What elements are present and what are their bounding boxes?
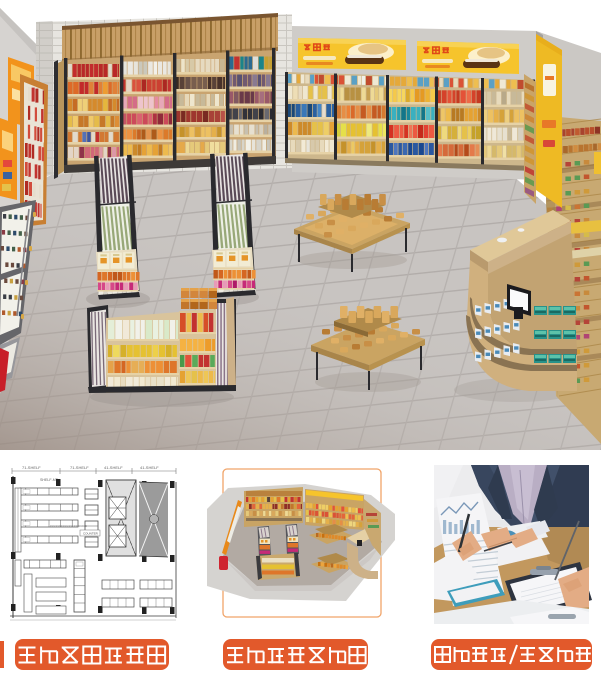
svg-text:41-SHELF: 41-SHELF: [140, 465, 159, 470]
svg-text:CCCCCCCCCCCCCCCCC: CCCCCCCCCCCCCCCCC: [50, 524, 88, 528]
svg-text:41-SHELF: 41-SHELF: [104, 465, 123, 470]
svg-text:COUNTER: COUNTER: [83, 532, 99, 536]
svg-text:SHELF-MT: SHELF-MT: [40, 478, 59, 482]
svg-text:71-SHELF: 71-SHELF: [22, 465, 41, 470]
svg-text:71-SHELF: 71-SHELF: [70, 465, 89, 470]
